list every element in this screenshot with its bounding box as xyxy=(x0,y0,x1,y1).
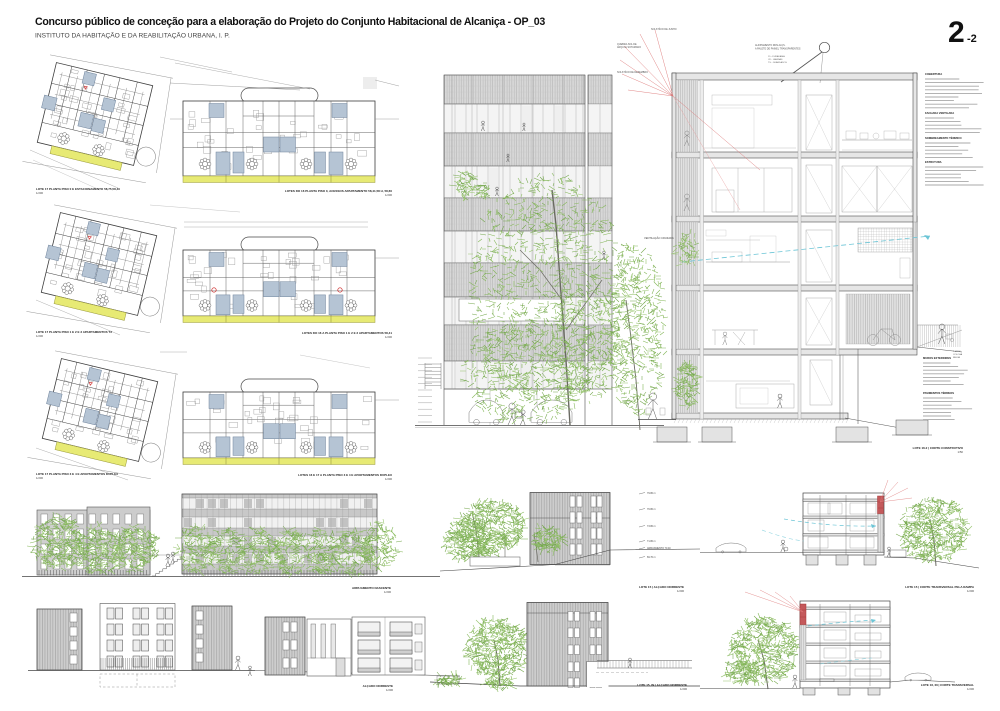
svg-text:1/200: 1/200 xyxy=(36,191,43,195)
svg-text:1/200: 1/200 xyxy=(967,589,974,593)
svg-text:LOTE 16.2 | CORTE CONSTRUTIVO: LOTE 16.2 | CORTE CONSTRUTIVO xyxy=(913,446,964,450)
svg-text:1/200: 1/200 xyxy=(385,193,392,197)
svg-text:1/200: 1/200 xyxy=(385,335,392,339)
svg-text:COBERTURA: COBERTURA xyxy=(925,72,942,76)
svg-text:SOLSTÍCIO DE JUNHO: SOLSTÍCIO DE JUNHO xyxy=(651,28,677,31)
svg-text:FACHADA VENTILADA: FACHADA VENTILADA xyxy=(925,111,954,115)
svg-text:LOTE 15 | CORTE TRANSVERSAL PE: LOTE 15 | CORTE TRANSVERSAL PELA RAMPA xyxy=(905,585,975,589)
svg-text:ARRUAMENTO 70.40: ARRUAMENTO 70.40 xyxy=(647,547,671,550)
svg-text:VENTILAÇÃO CRUZADA: VENTILAÇÃO CRUZADA xyxy=(644,235,674,240)
svg-text:-2: -2 xyxy=(967,33,977,45)
svg-text:PAVIMENTOS TÉRREOS: PAVIMENTOS TÉRREOS xyxy=(923,390,954,395)
svg-text:ESTRUTURA: ESTRUTURA xyxy=(925,160,942,164)
svg-text:RELVA: RELVA xyxy=(953,356,960,359)
svg-text:LOTES 16 E 17 A PLANTA PISO 3: LOTES 16 E 17 A PLANTA PISO 3 E 4 E APAR… xyxy=(298,473,392,477)
svg-text:ARQUI.E SOTAMANO: ARQUI.E SOTAMANO xyxy=(617,46,641,49)
svg-text:SOLSTÍCIO DE DEZEMBRO: SOLSTÍCIO DE DEZEMBRO xyxy=(617,71,648,74)
svg-text:7 M7 M: 7 M7 M xyxy=(953,351,960,353)
svg-text:73.80 m: 73.80 m xyxy=(647,525,656,528)
svg-text:1/200: 1/200 xyxy=(386,688,393,692)
svg-text:LOTE 17 PLANTA PISO 3 E 4 E AP: LOTE 17 PLANTA PISO 3 E 4 E APARTAMENTOS… xyxy=(36,472,118,476)
svg-text:69.70 m: 69.70 m xyxy=(647,556,656,559)
svg-text:LOTE 17 PLANTA PISO 0 E ESTACI: LOTE 17 PLANTA PISO 0 E ESTACIONAMENTO 5… xyxy=(36,187,120,191)
svg-text:1/200: 1/200 xyxy=(36,334,43,338)
svg-text:1/50: 1/50 xyxy=(958,450,964,454)
svg-text:MUROS EXTERIORES: MUROS EXTERIORES xyxy=(923,356,951,360)
svg-text:LOTE 17 PLANTA PISO 1 E 2 E 3: LOTE 17 PLANTA PISO 1 E 2 E 3 APARTAMENT… xyxy=(36,330,112,334)
svg-text:TS - GUARDADOS: TS - GUARDADOS xyxy=(768,61,787,64)
svg-text:1/200: 1/200 xyxy=(677,589,684,593)
svg-text:LOTES DO 16 PLANTA PISO 0, ACE: LOTES DO 16 PLANTA PISO 0, ACESSOS APART… xyxy=(285,189,392,193)
svg-text:A PALETE DE PAINEL TRANSPARENT: A PALETE DE PAINEL TRANSPARENTES xyxy=(755,47,801,50)
svg-text:Concurso público de conceção p: Concurso público de conceção para a elab… xyxy=(35,16,545,28)
svg-text:79.80 m: 79.80 m xyxy=(647,492,656,495)
svg-text:1/200: 1/200 xyxy=(385,477,392,481)
svg-text:76.80 m: 76.80 m xyxy=(647,508,656,511)
svg-text:1/200: 1/200 xyxy=(384,590,391,594)
svg-text:1/200: 1/200 xyxy=(680,687,687,691)
svg-text:INSTITUTO DA HABITAÇÃO E DA RE: INSTITUTO DA HABITAÇÃO E DA REABILITAÇÃO… xyxy=(35,31,230,40)
svg-text:71.80 m: 71.80 m xyxy=(647,540,656,543)
svg-text:1/200: 1/200 xyxy=(36,476,43,480)
svg-text:1/200: 1/200 xyxy=(967,687,974,691)
svg-text:LOTES DO 16 A PLANTA PISO 1 E: LOTES DO 16 A PLANTA PISO 1 E 2 E 3 APAR… xyxy=(302,331,392,335)
svg-text:COLCHA: COLCHA xyxy=(953,353,963,356)
svg-text:2: 2 xyxy=(948,16,965,49)
svg-text:CF - LAMINAS: CF - LAMINAS xyxy=(768,58,783,61)
svg-text:SOMBREAMENTO TÉRMICO: SOMBREAMENTO TÉRMICO xyxy=(925,135,962,140)
svg-text:15 - FURADAMA: 15 - FURADAMA xyxy=(768,55,785,58)
